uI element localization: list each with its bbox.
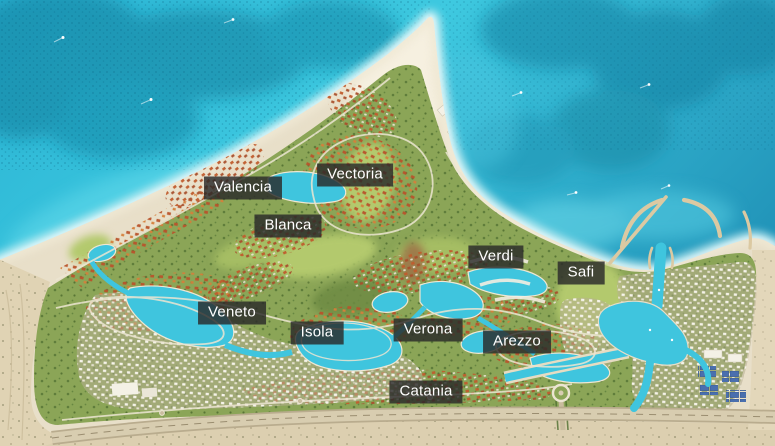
map-canvas (0, 0, 775, 446)
region-label-blanca[interactable]: Blanca (254, 215, 321, 238)
region-label-valencia[interactable]: Valencia (204, 177, 282, 200)
region-label-veneto[interactable]: Veneto (198, 302, 266, 325)
region-label-vectoria[interactable]: Vectoria (317, 164, 393, 187)
region-label-verona[interactable]: Verona (394, 319, 463, 342)
region-label-verdi[interactable]: Verdi (468, 246, 523, 269)
region-label-safi[interactable]: Safi (558, 262, 605, 285)
marina-channel (657, 248, 661, 306)
region-label-catania[interactable]: Catania (389, 381, 462, 404)
region-label-arezzo[interactable]: Arezzo (483, 331, 551, 354)
masterplan-map: ValenciaVectoriaBlancaVerdiSafiVenetoIso… (0, 0, 775, 446)
region-label-isola[interactable]: Isola (291, 322, 344, 345)
